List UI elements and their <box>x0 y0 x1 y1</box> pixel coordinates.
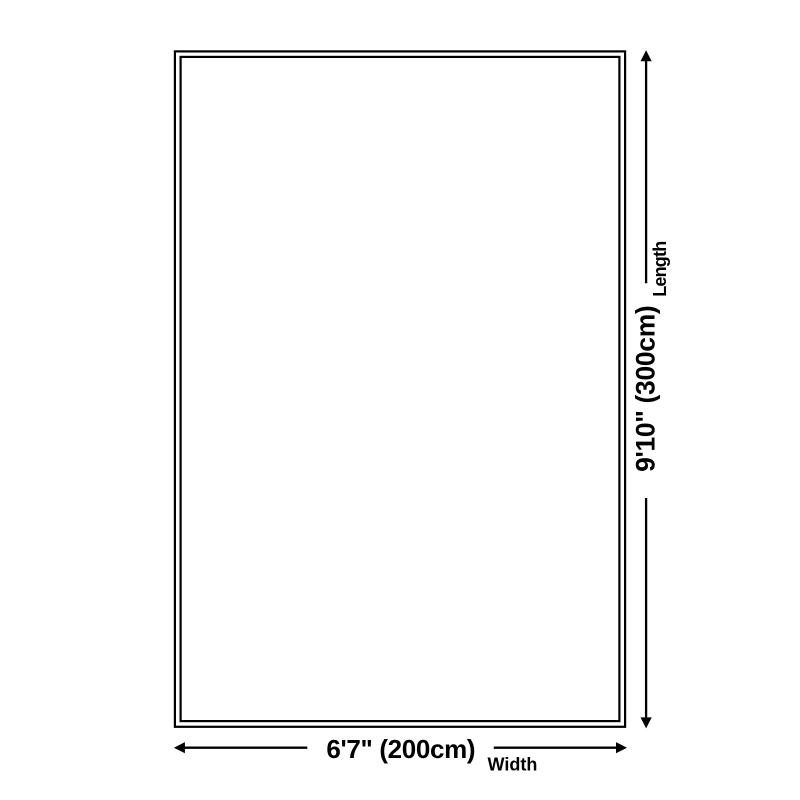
svg-text:6'7" (200cm): 6'7" (200cm) <box>326 734 475 764</box>
svg-text:Length: Length <box>650 242 670 297</box>
svg-text:9'10" (300cm): 9'10" (300cm) <box>630 306 660 472</box>
svg-text:Width: Width <box>488 754 538 774</box>
